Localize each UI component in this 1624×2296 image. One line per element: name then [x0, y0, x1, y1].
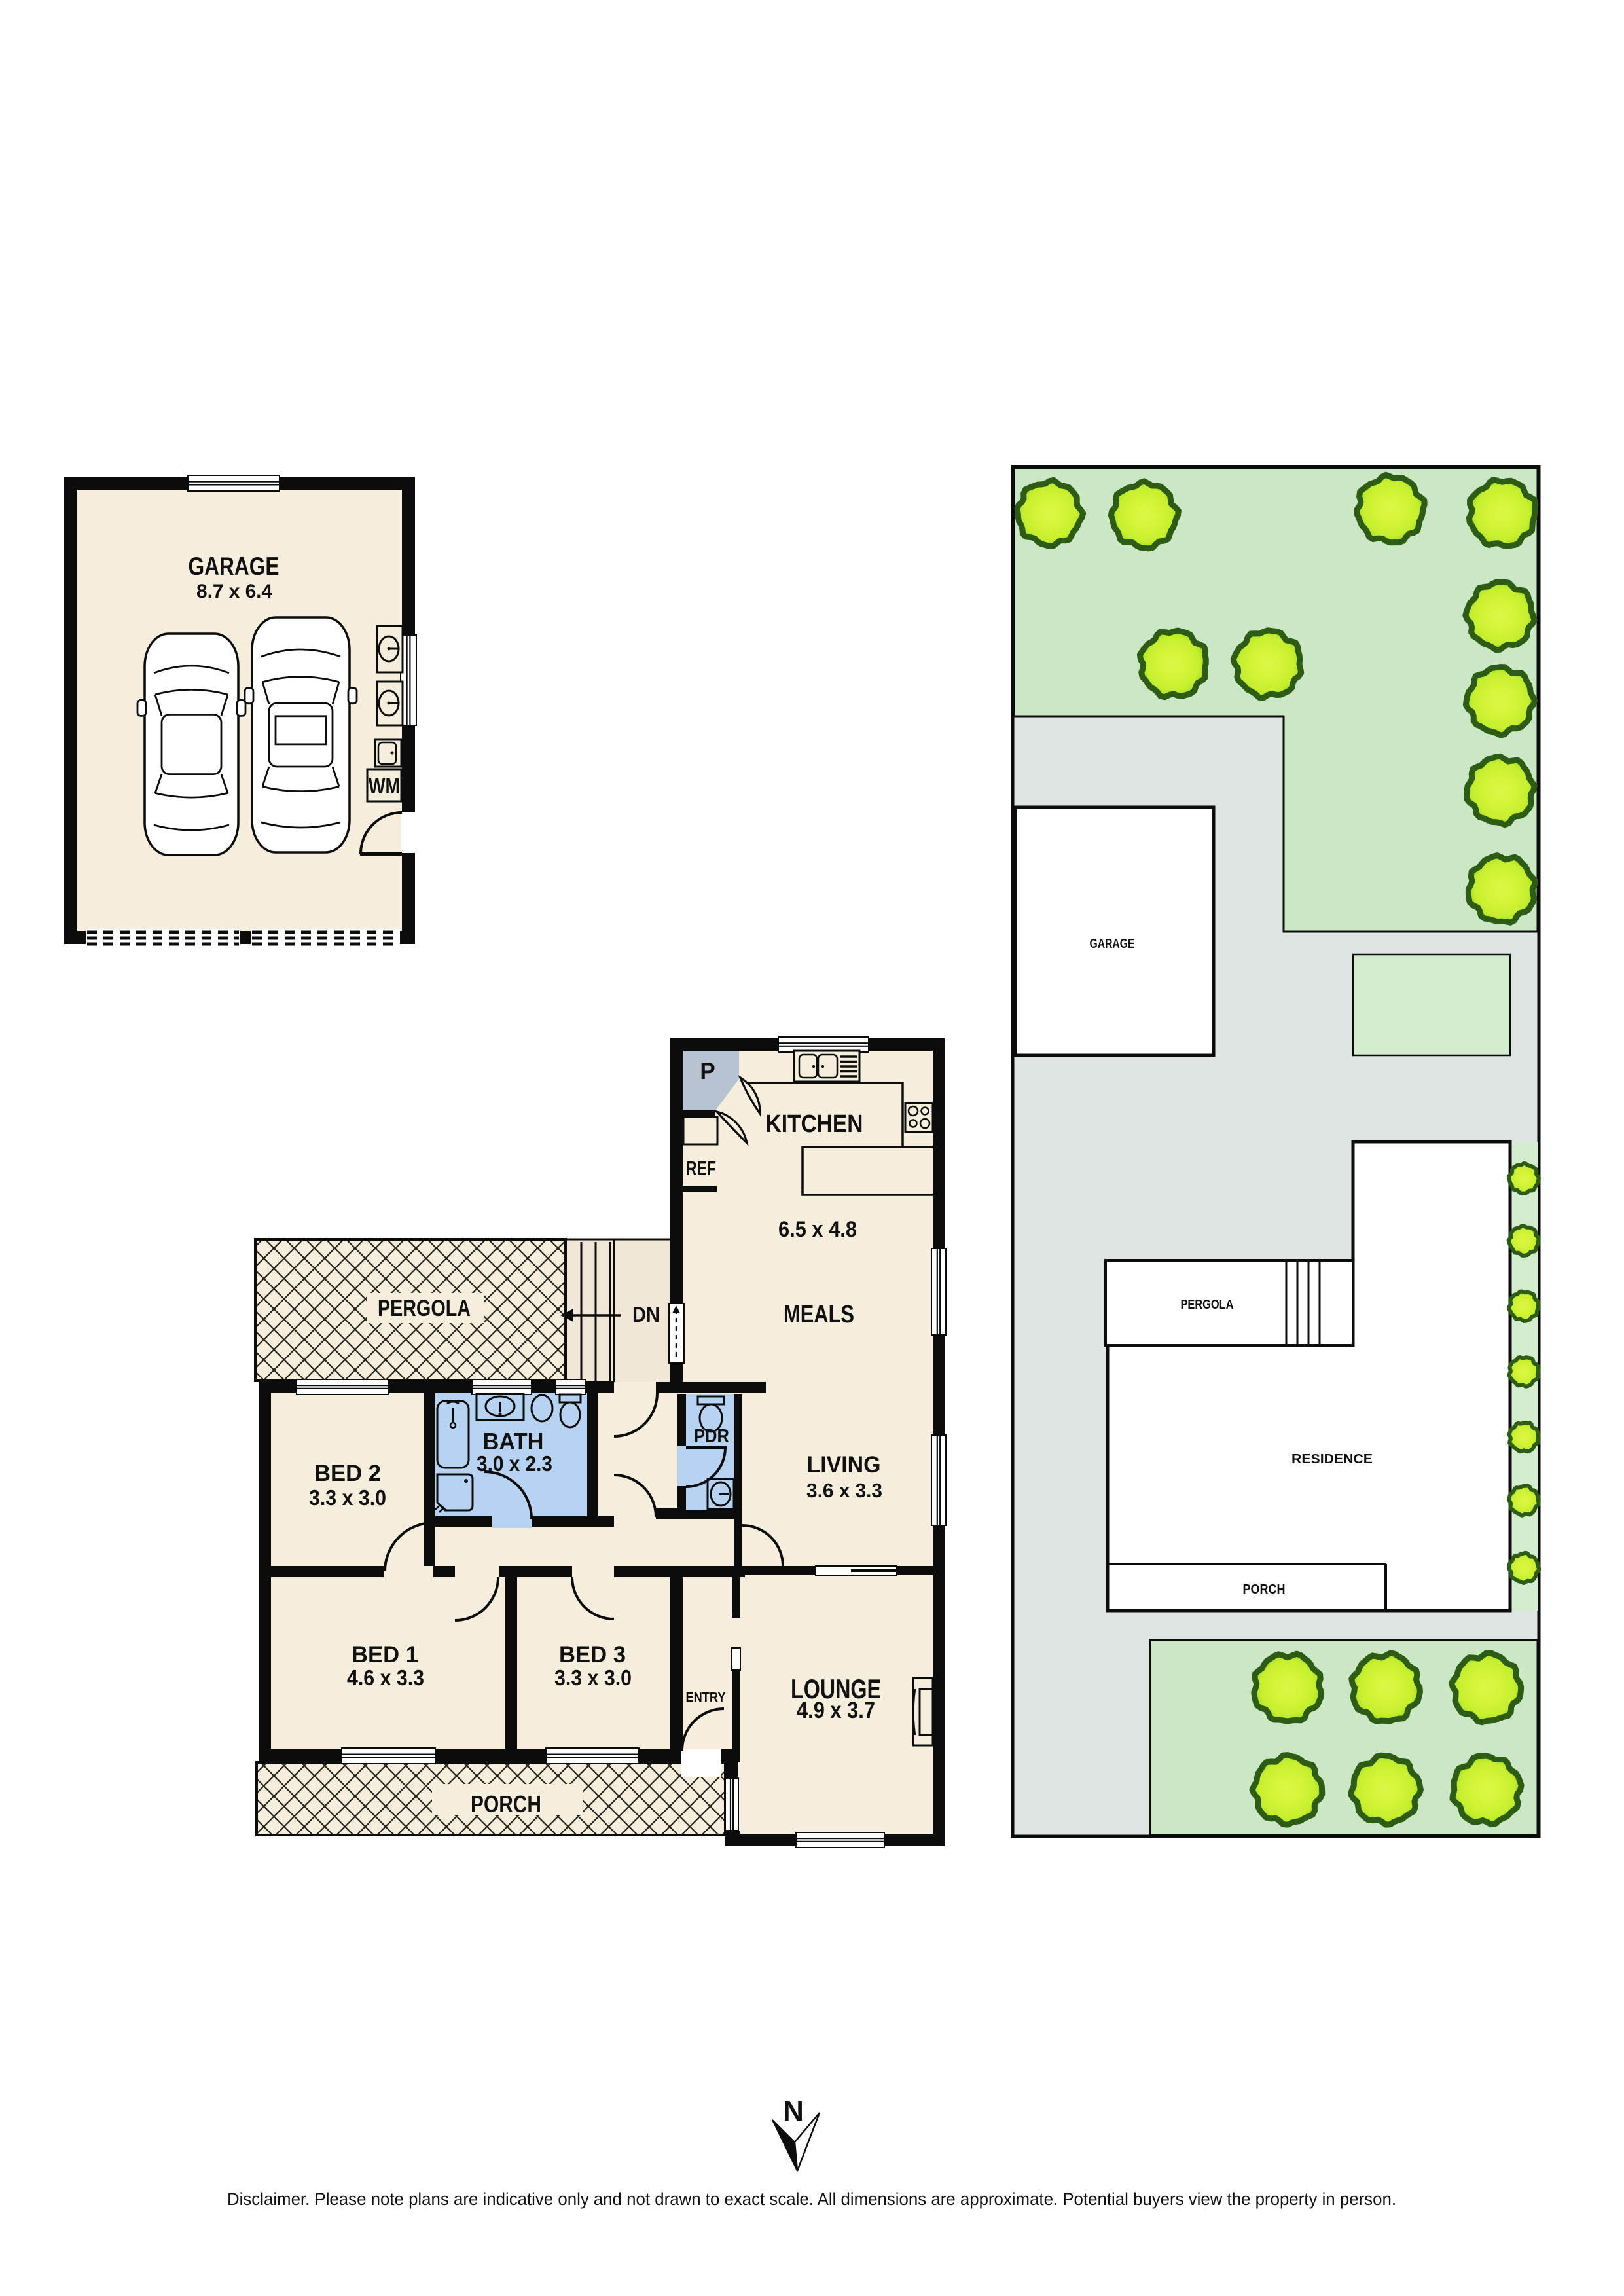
- svg-text:LIVING: LIVING: [807, 1452, 881, 1478]
- svg-text:ENTRY: ENTRY: [686, 1690, 727, 1705]
- svg-text:BED 3: BED 3: [559, 1642, 626, 1667]
- svg-text:BATH: BATH: [483, 1428, 544, 1455]
- svg-text:3.3 x 3.0: 3.3 x 3.0: [309, 1485, 386, 1510]
- svg-text:PORCH: PORCH: [471, 1791, 541, 1817]
- svg-text:GARAGE: GARAGE: [1090, 937, 1135, 951]
- svg-text:6.5 x 4.8: 6.5 x 4.8: [778, 1217, 857, 1242]
- svg-text:BED 1: BED 1: [352, 1642, 418, 1667]
- svg-text:PORCH: PORCH: [1243, 1582, 1286, 1597]
- svg-text:BED 2: BED 2: [314, 1461, 381, 1486]
- svg-text:8.7 x 6.4: 8.7 x 6.4: [196, 581, 272, 602]
- svg-text:P: P: [700, 1059, 715, 1084]
- svg-text:KITCHEN: KITCHEN: [766, 1110, 863, 1138]
- svg-text:PERGOLA: PERGOLA: [1181, 1298, 1234, 1312]
- svg-text:RESIDENCE: RESIDENCE: [1291, 1452, 1373, 1467]
- svg-text:REF: REF: [686, 1157, 716, 1180]
- svg-text:Disclaimer. Please note plans: Disclaimer. Please note plans are indica…: [227, 2189, 1396, 2209]
- svg-text:GARAGE: GARAGE: [189, 553, 280, 581]
- svg-text:DN: DN: [632, 1303, 660, 1326]
- svg-text:3.3 x 3.0: 3.3 x 3.0: [554, 1666, 632, 1690]
- svg-text:MEALS: MEALS: [784, 1301, 854, 1328]
- svg-text:3.0 x 2.3: 3.0 x 2.3: [477, 1451, 552, 1476]
- svg-text:PERGOLA: PERGOLA: [378, 1296, 471, 1321]
- svg-text:3.6 x 3.3: 3.6 x 3.3: [806, 1479, 882, 1502]
- svg-text:N: N: [783, 2095, 804, 2127]
- svg-text:WM: WM: [369, 774, 400, 798]
- svg-text:PDR: PDR: [694, 1426, 729, 1447]
- svg-text:4.9 x 3.7: 4.9 x 3.7: [797, 1698, 875, 1723]
- svg-text:4.6 x 3.3: 4.6 x 3.3: [347, 1666, 424, 1690]
